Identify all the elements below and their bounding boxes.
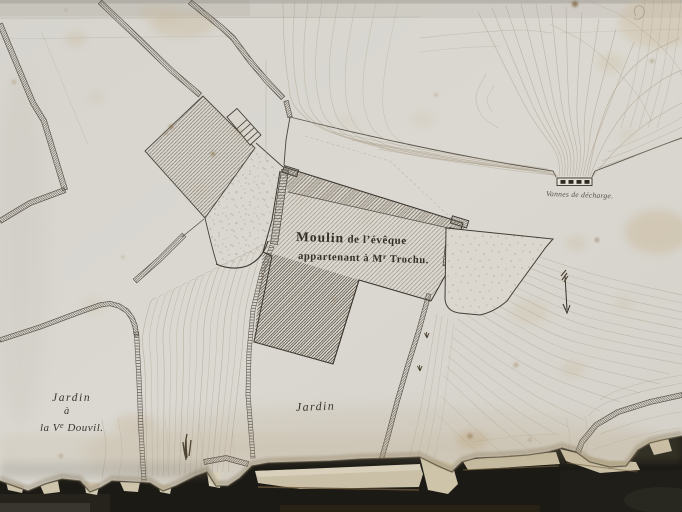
svg-text:Jardin: Jardin — [52, 392, 91, 404]
svg-text:à: à — [64, 406, 69, 417]
svg-text:Jardin: Jardin — [296, 399, 336, 414]
svg-text:la Ve Douvil.: la Ve Douvil. — [40, 421, 104, 434]
